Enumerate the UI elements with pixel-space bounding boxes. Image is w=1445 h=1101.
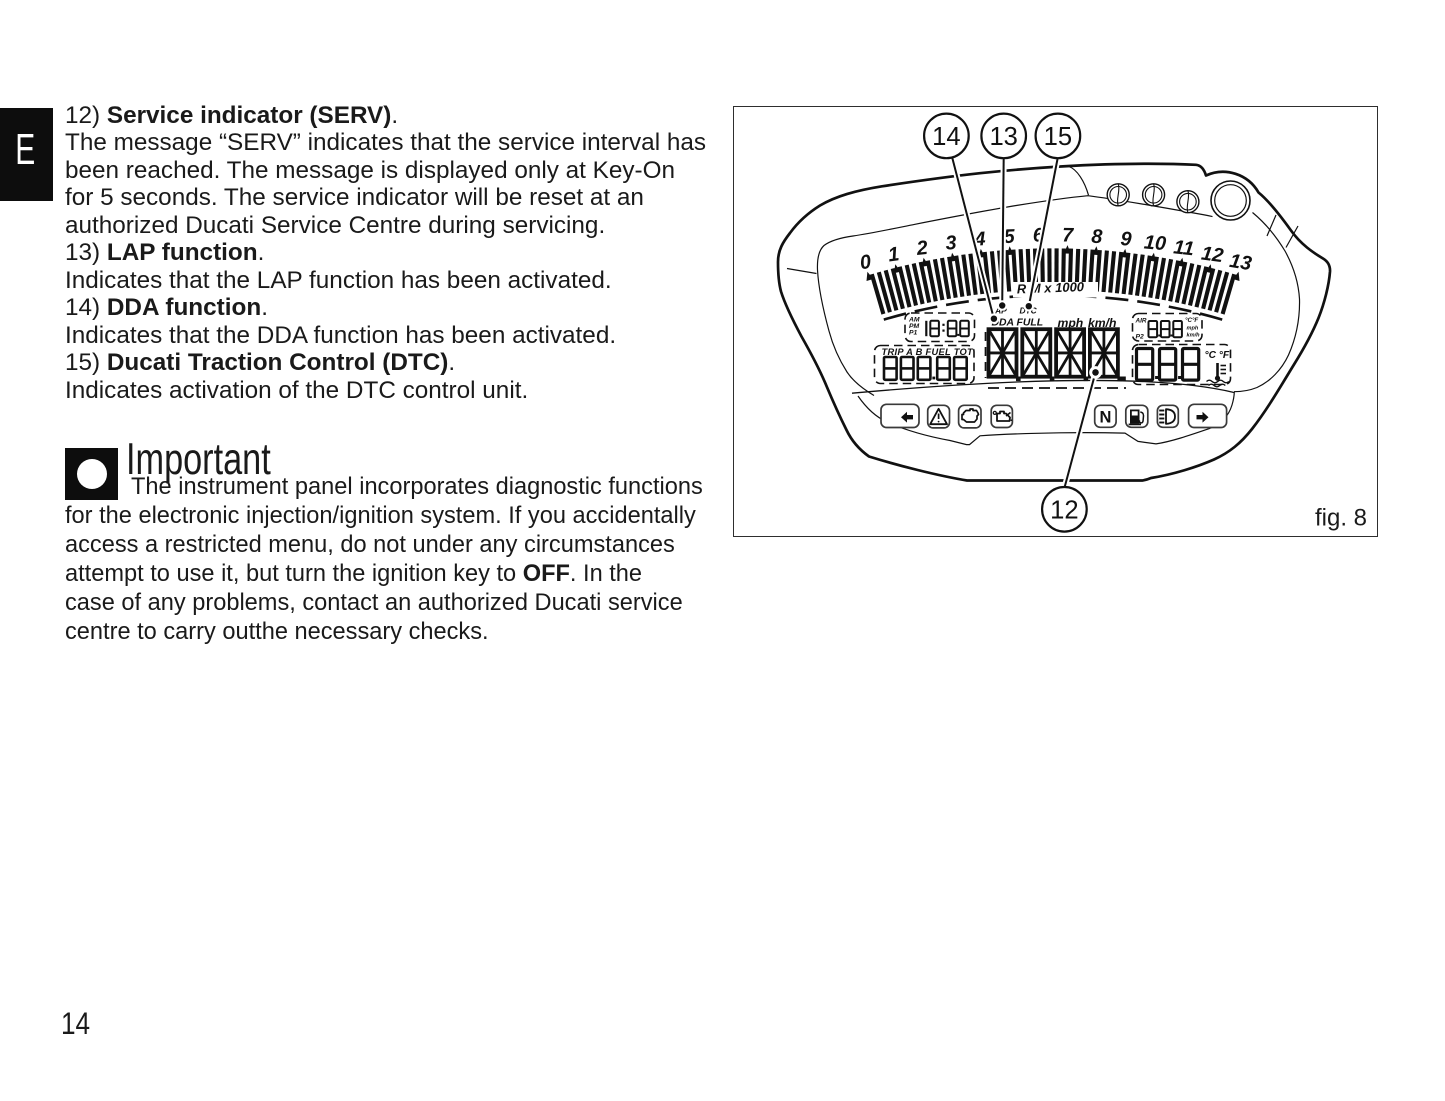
svg-text:fig. 8: fig. 8 <box>1315 505 1367 532</box>
svg-text:13: 13 <box>1228 250 1253 275</box>
svg-text:°C °F: °C °F <box>1205 350 1230 361</box>
svg-text:R M x 1000: R M x 1000 <box>1017 279 1085 296</box>
svg-text:14: 14 <box>932 123 960 151</box>
svg-text:13: 13 <box>989 123 1017 151</box>
svg-text:15: 15 <box>1044 123 1072 151</box>
svg-text:12: 12 <box>1200 242 1225 267</box>
svg-text:°C°F: °C°F <box>1185 317 1198 324</box>
svg-text:P2: P2 <box>1136 334 1145 341</box>
svg-text:10: 10 <box>1143 231 1167 255</box>
svg-text:12: 12 <box>1050 497 1078 525</box>
svg-text:9: 9 <box>1120 228 1132 251</box>
svg-text:km/h: km/h <box>1187 333 1201 339</box>
svg-text:TRIP A B FUEL TOT: TRIP A B FUEL TOT <box>882 347 975 357</box>
svg-text:FULL: FULL <box>1017 317 1044 328</box>
svg-text:7: 7 <box>1062 225 1074 247</box>
svg-text:mph: mph <box>1187 325 1199 331</box>
svg-text:N: N <box>1099 409 1111 427</box>
svg-text:3: 3 <box>945 232 958 255</box>
svg-text:11: 11 <box>1172 236 1195 260</box>
svg-text:P1: P1 <box>909 330 918 337</box>
svg-text:2: 2 <box>915 237 929 260</box>
svg-text:8: 8 <box>1091 226 1103 248</box>
svg-text:AIR: AIR <box>1135 318 1147 325</box>
